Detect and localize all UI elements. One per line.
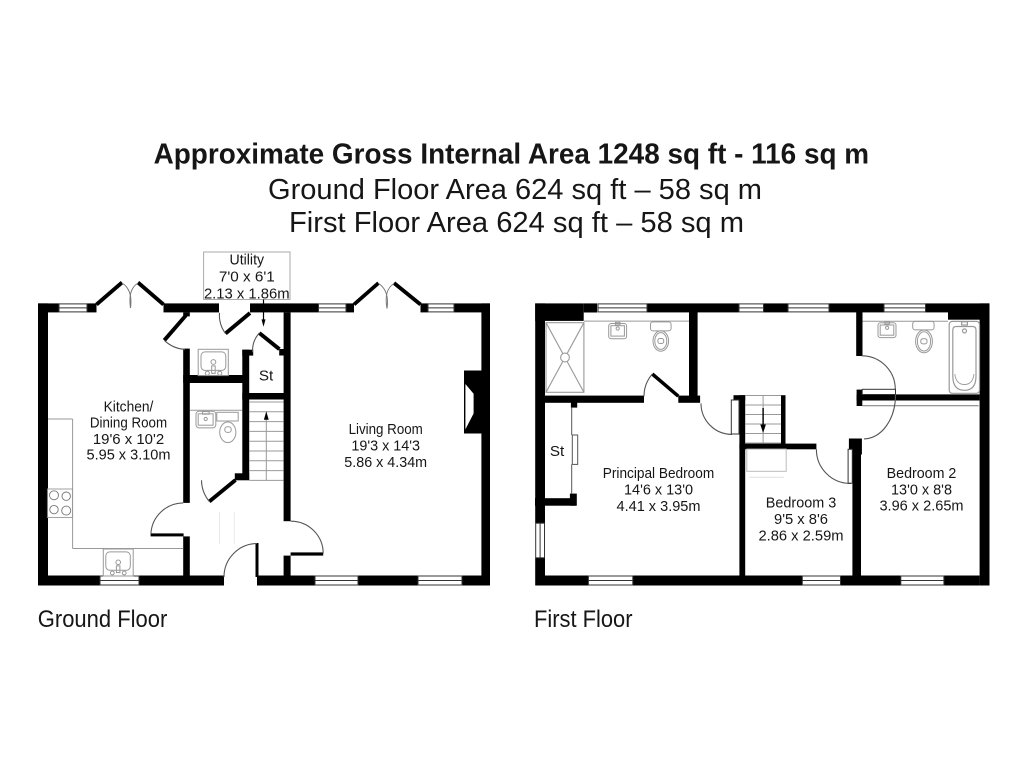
svg-text:3.96 x 2.65m: 3.96 x 2.65m [879, 498, 963, 515]
svg-text:Dining Room: Dining Room [90, 415, 167, 432]
svg-text:5.86 x 4.34m: 5.86 x 4.34m [344, 454, 427, 471]
svg-text:2.86 x 2.59m: 2.86 x 2.59m [758, 527, 843, 544]
svg-text:St: St [550, 443, 565, 460]
svg-text:5.95 x 3.10m: 5.95 x 3.10m [87, 446, 171, 463]
svg-text:Bedroom 3: Bedroom 3 [766, 494, 836, 511]
svg-text:4.41 x 3.95m: 4.41 x 3.95m [617, 498, 701, 515]
svg-text:13'0 x 8'8: 13'0 x 8'8 [891, 481, 952, 498]
svg-text:14'6 x 13'0: 14'6 x 13'0 [624, 481, 693, 498]
svg-text:Utility: Utility [230, 252, 265, 269]
svg-text:Ground Floor Area 624 sq ft –: Ground Floor Area 624 sq ft – 58 sq m [268, 174, 762, 206]
svg-text:Approximate Gross Internal Are: Approximate Gross Internal Area 1248 sq … [154, 139, 870, 171]
svg-text:Living Room: Living Room [349, 421, 423, 438]
svg-text:19'3 x 14'3: 19'3 x 14'3 [351, 437, 420, 454]
svg-text:First Floor Area 624 sq ft – 5: First Floor Area 624 sq ft – 58 sq m [289, 207, 744, 239]
svg-text:7'0 x 6'1: 7'0 x 6'1 [219, 269, 275, 286]
svg-text:First Floor: First Floor [534, 606, 633, 633]
svg-text:Kitchen/: Kitchen/ [104, 398, 154, 415]
svg-text:St: St [259, 368, 274, 385]
svg-text:19'6 x 10'2: 19'6 x 10'2 [93, 431, 164, 448]
svg-text:Ground Floor: Ground Floor [38, 606, 168, 633]
svg-text:2.13 x 1.86m: 2.13 x 1.86m [204, 286, 290, 303]
svg-text:Bedroom 2: Bedroom 2 [887, 465, 957, 482]
svg-text:9'5 x 8'6: 9'5 x 8'6 [774, 511, 828, 528]
svg-text:Principal Bedroom: Principal Bedroom [603, 465, 714, 482]
